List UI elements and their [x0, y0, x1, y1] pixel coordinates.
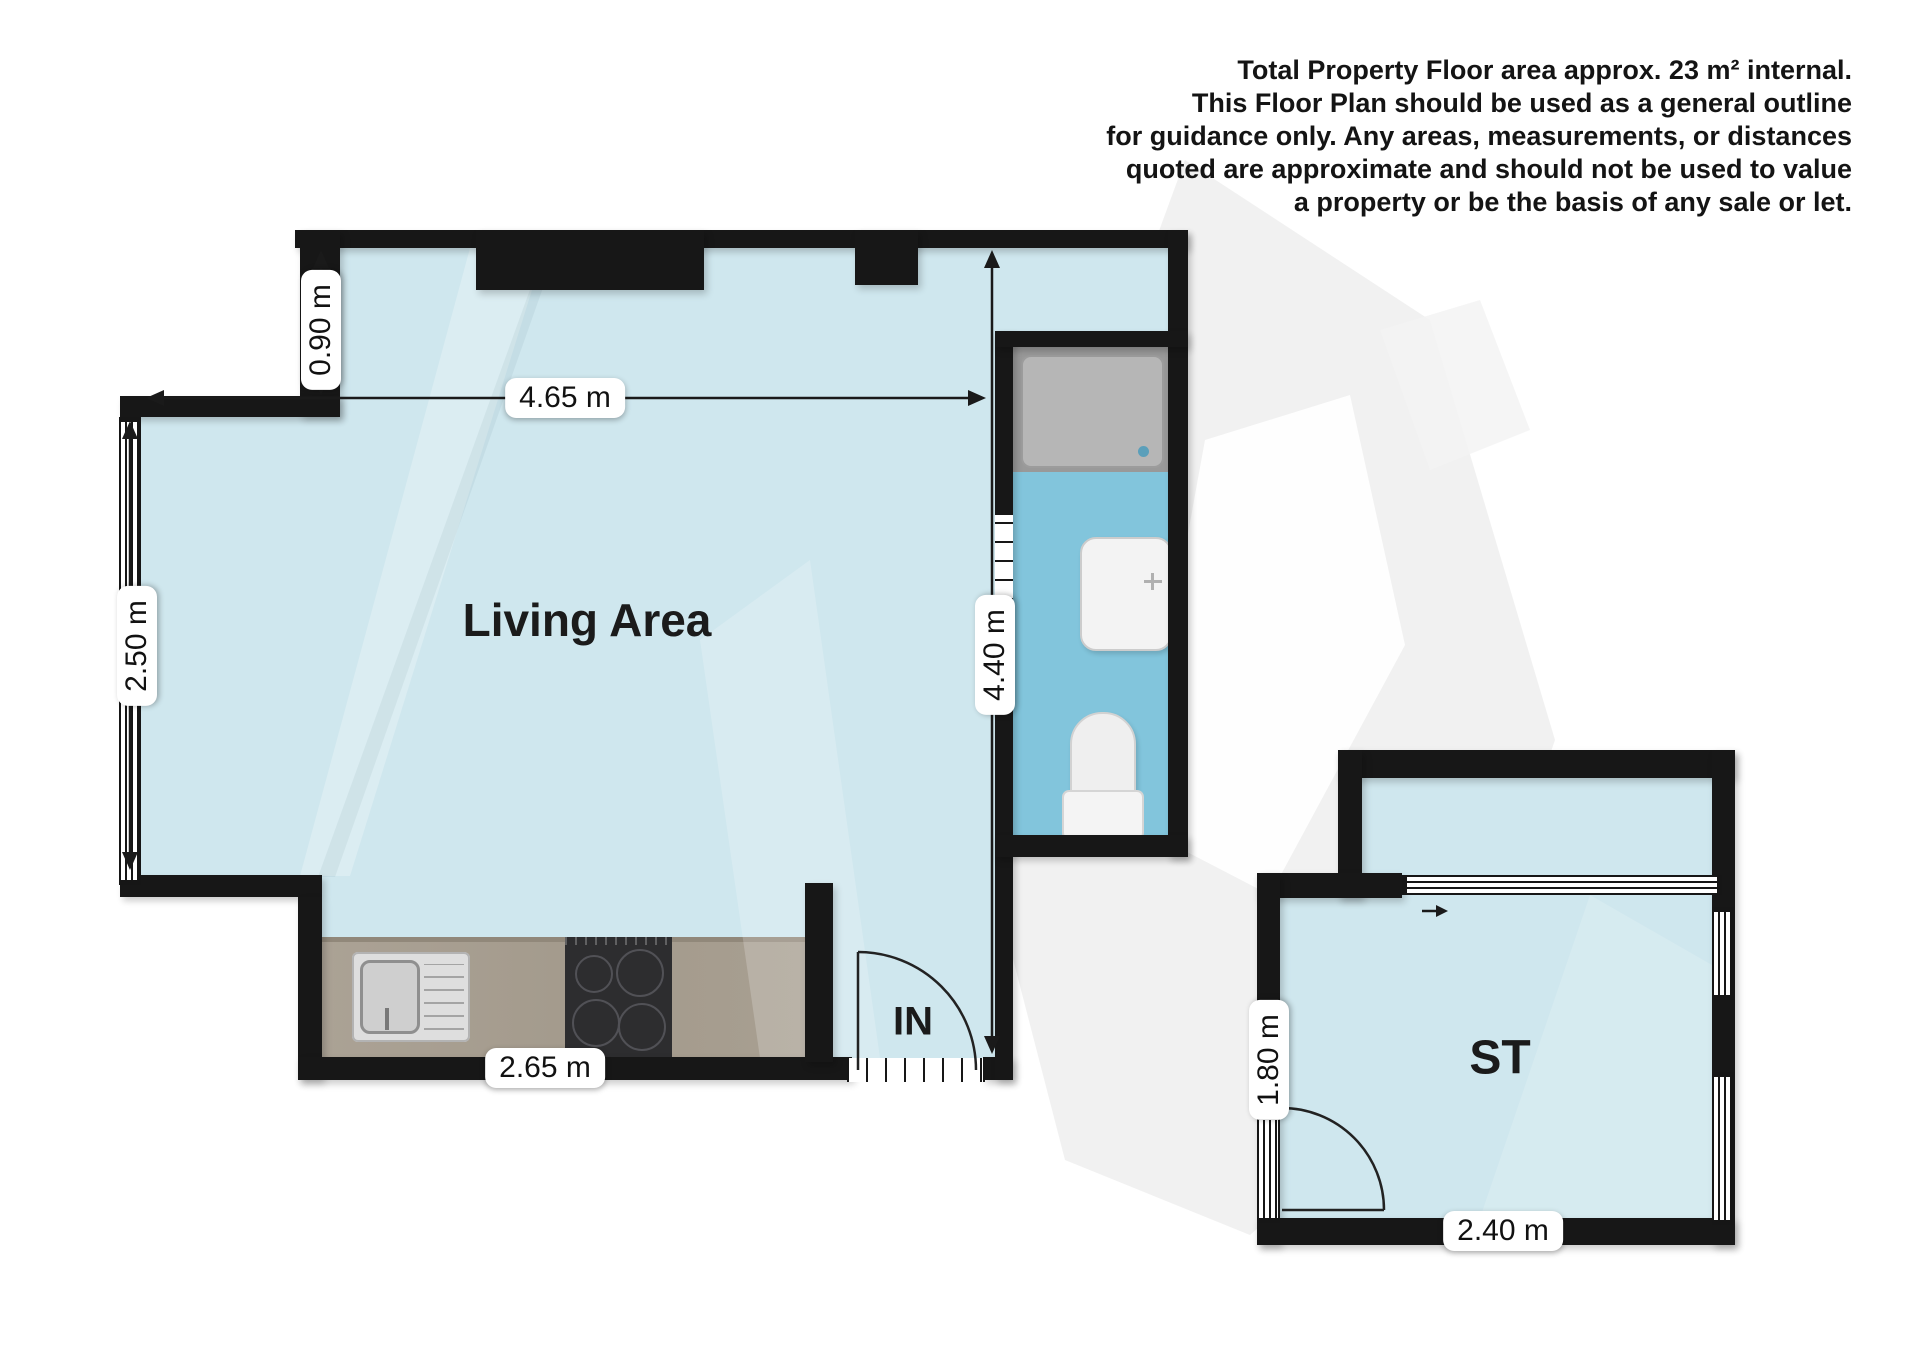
disclaimer-line: a property or be the basis of any sale o…	[1106, 186, 1852, 219]
arrow-left-icon	[146, 390, 164, 406]
arrow-up-icon	[984, 250, 1000, 268]
room-label-storage: ST	[1469, 1031, 1530, 1086]
disclaimer-line: Total Property Floor area approx. 23 m² …	[1106, 54, 1852, 87]
dimension-kitchen-width: 2.65 m	[485, 1048, 605, 1088]
storage-door-arc	[1282, 1108, 1384, 1210]
door-swings	[858, 952, 1384, 1210]
dimension-storage-width: 2.40 m	[1443, 1211, 1563, 1251]
dimension-living-width: 4.65 m	[505, 378, 625, 418]
arrow-up-icon	[122, 421, 138, 439]
room-label-entrance: IN	[893, 1000, 933, 1045]
arrow-down-icon	[122, 852, 138, 870]
arrow-right-icon	[968, 390, 986, 406]
floorplan-page: 0.90 m 4.65 m 2.50 m 4.40 m 2.65 m 1.80 …	[0, 0, 1920, 1360]
room-label-living-area: Living Area	[463, 593, 712, 647]
disclaimer-text: Total Property Floor area approx. 23 m² …	[1106, 54, 1852, 219]
dimension-notch-height: 0.90 m	[301, 270, 341, 390]
dimension-storage-depth: 1.80 m	[1249, 1000, 1289, 1120]
disclaimer-line: This Floor Plan should be used as a gene…	[1106, 87, 1852, 120]
arrow-right-icon	[1436, 905, 1448, 917]
disclaimer-line: for guidance only. Any areas, measuremen…	[1106, 120, 1852, 153]
dimension-unit-depth: 4.40 m	[975, 595, 1015, 715]
disclaimer-line: quoted are approximate and should not be…	[1106, 153, 1852, 186]
arrow-up-icon	[313, 250, 329, 268]
arrow-down-icon	[984, 1036, 1000, 1054]
dimension-window-height: 2.50 m	[117, 586, 157, 706]
